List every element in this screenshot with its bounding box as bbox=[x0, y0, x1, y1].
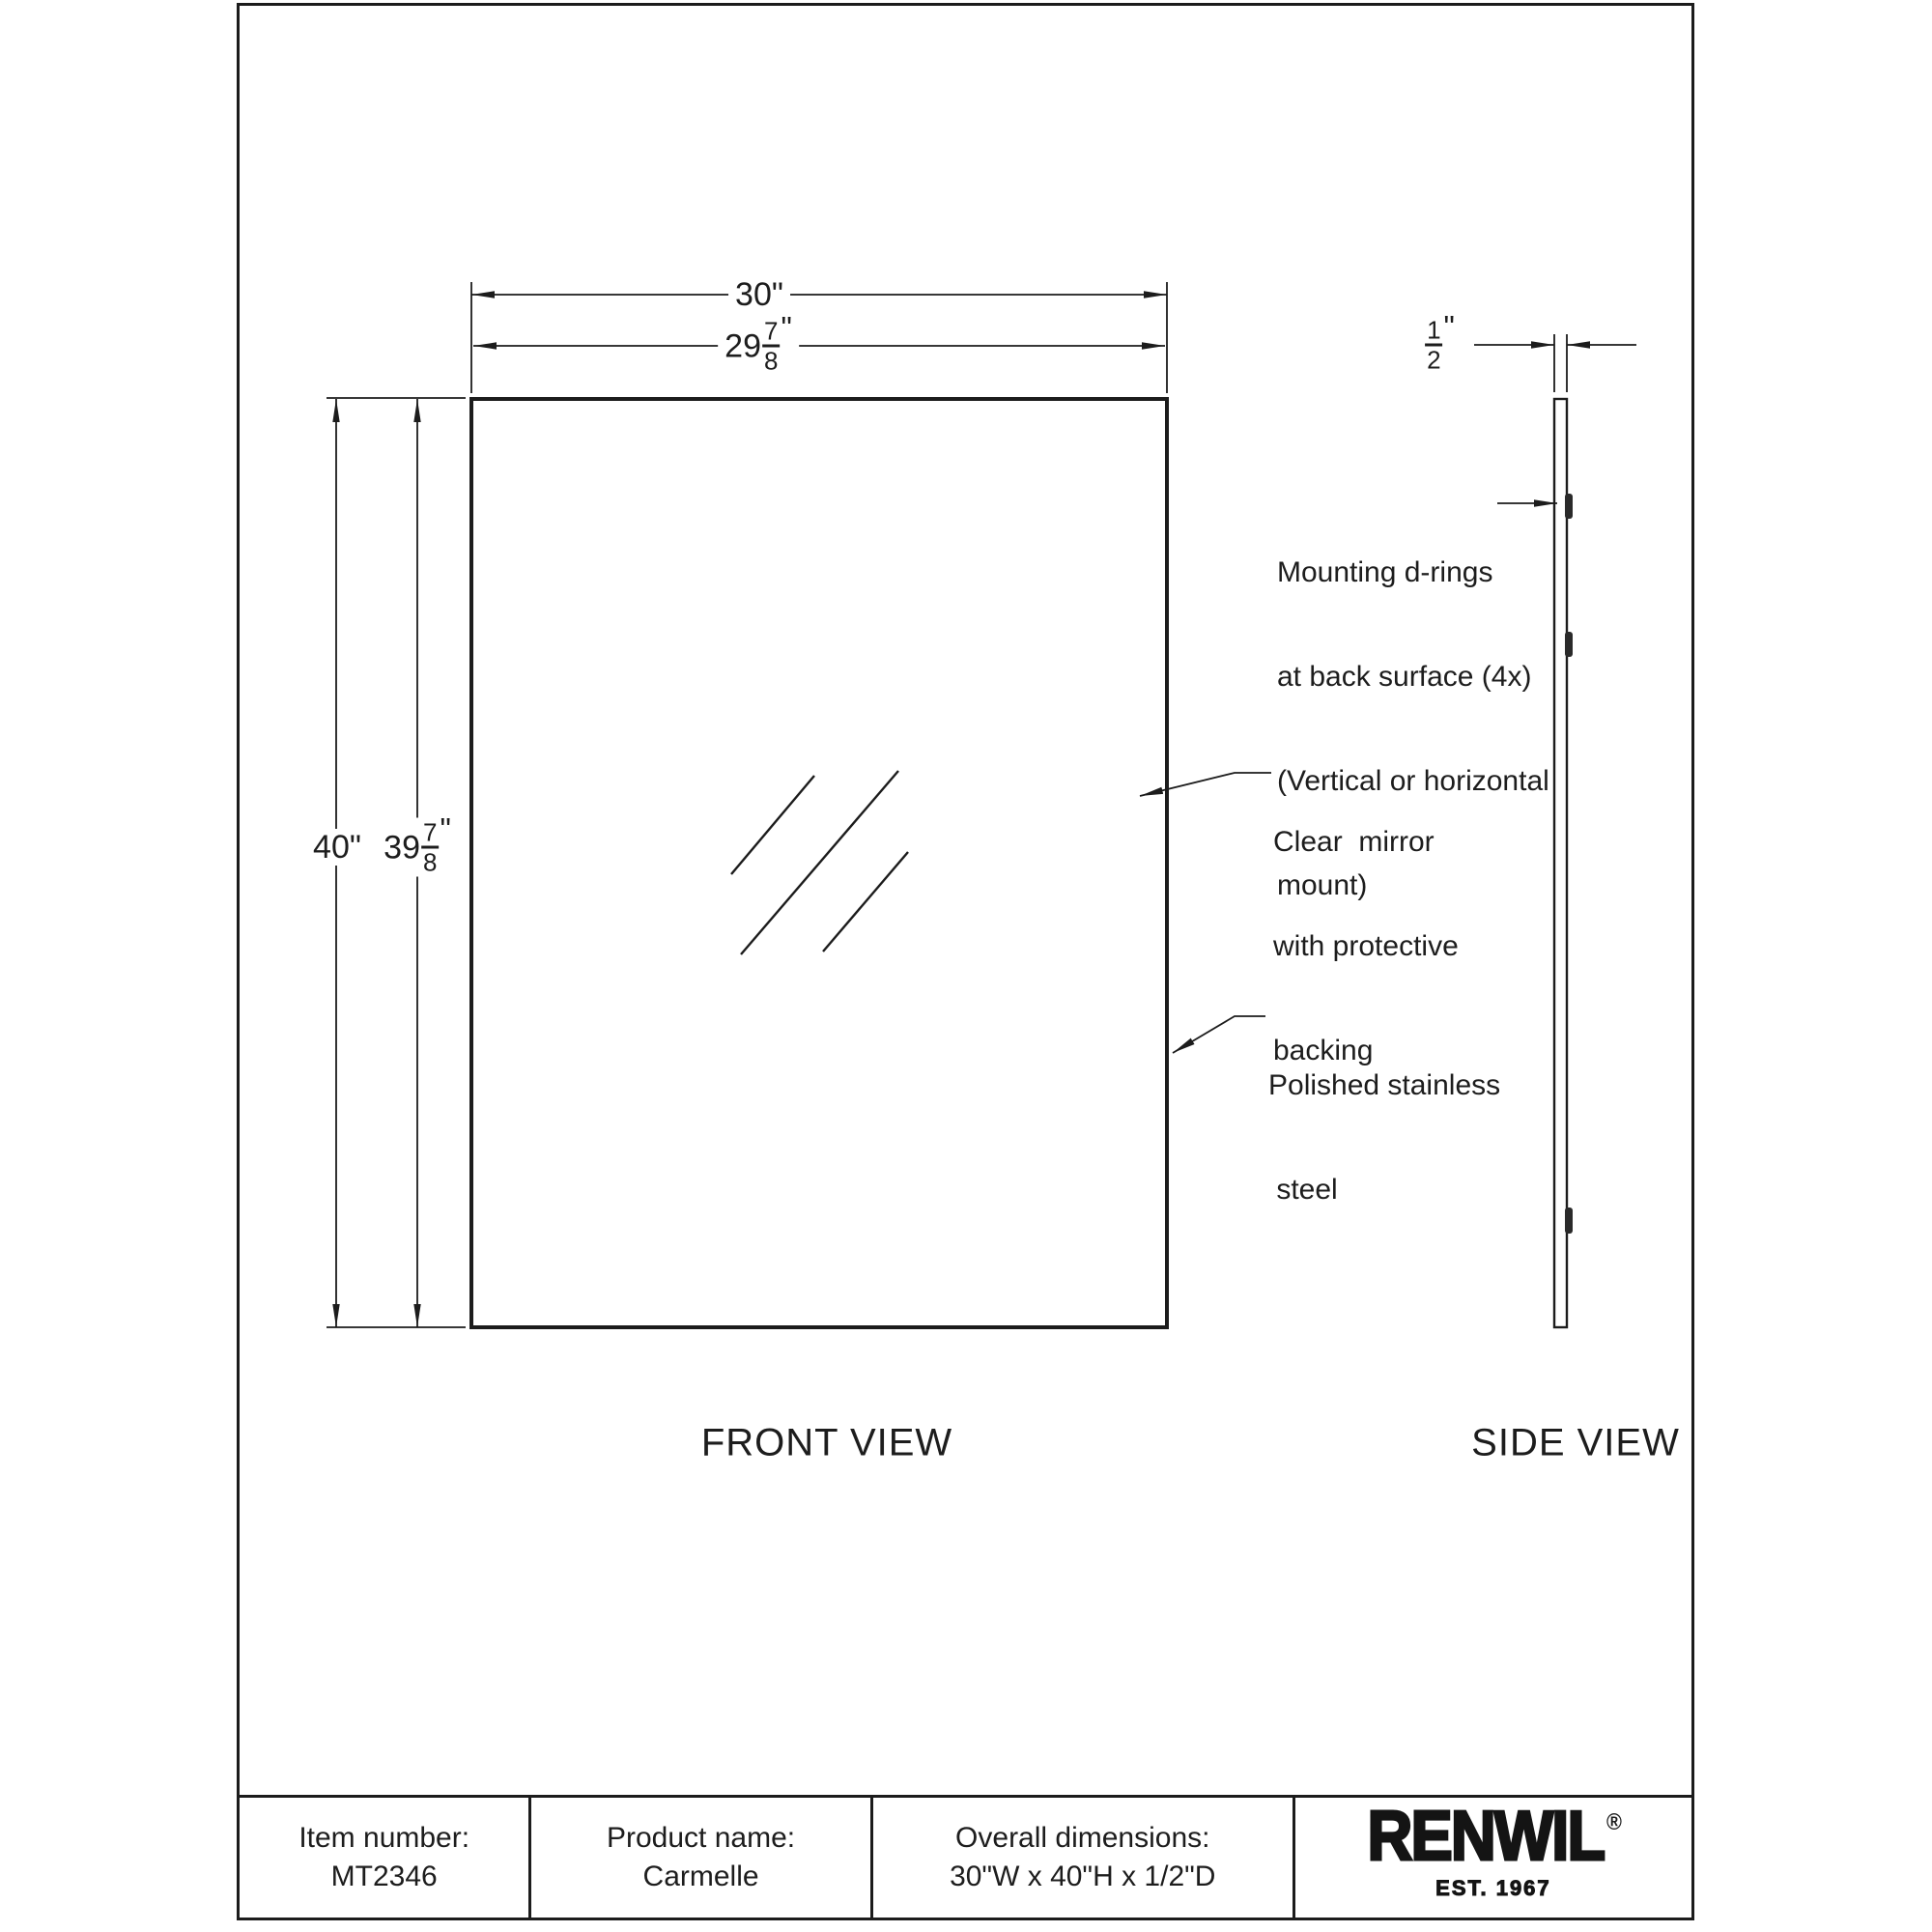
item-number-value: MT2346 bbox=[331, 1858, 438, 1896]
title-block-item-number: Item number: MT2346 bbox=[240, 1798, 531, 1918]
annotation-line: Clear mirror bbox=[1273, 825, 1459, 860]
side-view-outline bbox=[1554, 399, 1567, 1327]
fraction-numerator: 7 bbox=[762, 319, 780, 348]
d-ring-top bbox=[1565, 494, 1573, 519]
dim-width-glass-unit: " bbox=[781, 313, 791, 344]
technical-drawing-page: 30" 2978" 40" 3978" 12" Mounting d-rings… bbox=[0, 0, 1932, 1932]
brand-established-text: EST. 1967 bbox=[1435, 1869, 1551, 1908]
fraction: 78 bbox=[762, 319, 780, 374]
dim-width-glass-whole: 29 bbox=[724, 329, 761, 362]
product-name-value: Carmelle bbox=[643, 1858, 759, 1896]
fraction: 78 bbox=[421, 820, 439, 875]
annotation-polished-steel: Polished stainless steel bbox=[1268, 999, 1500, 1277]
overall-dimensions-label: Overall dimensions: bbox=[955, 1819, 1209, 1858]
dim-label-height-glass: 3978" bbox=[377, 818, 458, 877]
front-view-title: FRONT VIEW bbox=[701, 1422, 952, 1465]
d-ring-bottom bbox=[1565, 1207, 1573, 1234]
leader-polished-steel bbox=[1173, 1016, 1265, 1053]
title-block: Item number: MT2346 Product name: Carmel… bbox=[237, 1795, 1694, 1920]
title-block-product-name: Product name: Carmelle bbox=[531, 1798, 872, 1918]
overall-dimensions-value: 30"W x 40"H x 1/2"D bbox=[950, 1858, 1215, 1896]
annotation-line: steel bbox=[1268, 1173, 1500, 1207]
renwil-logo: RENWIL bbox=[1368, 1807, 1605, 1865]
fraction-denominator: 8 bbox=[764, 348, 778, 374]
dim-label-width-overall: 30" bbox=[728, 276, 790, 313]
dim-height-glass-whole: 39 bbox=[384, 831, 420, 864]
title-block-brand: RENWIL ® EST. 1967 bbox=[1295, 1798, 1691, 1918]
registered-trademark-icon: ® bbox=[1606, 1804, 1622, 1842]
annotation-line: at back surface (4x) bbox=[1277, 660, 1549, 695]
dim-height-overall-value: 40 bbox=[313, 831, 350, 864]
annotation-line: Polished stainless bbox=[1268, 1068, 1500, 1103]
dim-width-overall-value: 30 bbox=[735, 278, 772, 311]
dim-label-width-glass: 2978" bbox=[718, 317, 799, 376]
annotation-line: Mounting d-rings bbox=[1277, 555, 1549, 590]
brand-logo-row: RENWIL ® bbox=[1368, 1807, 1620, 1865]
title-block-overall-dimensions: Overall dimensions: 30"W x 40"H x 1/2"D bbox=[873, 1798, 1295, 1918]
dim-depth-unit: " bbox=[1444, 312, 1455, 343]
fraction-denominator: 8 bbox=[423, 849, 437, 875]
dim-width-overall-unit: " bbox=[772, 278, 783, 311]
annotation-line: with protective bbox=[1273, 929, 1459, 964]
d-ring-middle bbox=[1565, 632, 1573, 657]
dim-height-overall-unit: " bbox=[350, 831, 361, 864]
dim-label-height-overall: 40" bbox=[306, 829, 368, 866]
fraction-denominator: 2 bbox=[1427, 347, 1440, 373]
fraction-numerator: 1 bbox=[1425, 318, 1442, 347]
fraction-numerator: 7 bbox=[421, 820, 439, 849]
dim-height-glass-unit: " bbox=[440, 814, 450, 845]
product-name-label: Product name: bbox=[607, 1819, 795, 1858]
dim-label-depth: 12" bbox=[1417, 316, 1462, 375]
brand-logo-block: RENWIL ® EST. 1967 bbox=[1353, 1807, 1634, 1908]
item-number-label: Item number: bbox=[298, 1819, 469, 1858]
fraction: 12 bbox=[1425, 318, 1442, 373]
drawing-canvas bbox=[0, 0, 1932, 1932]
side-view-title: SIDE VIEW bbox=[1471, 1422, 1680, 1465]
